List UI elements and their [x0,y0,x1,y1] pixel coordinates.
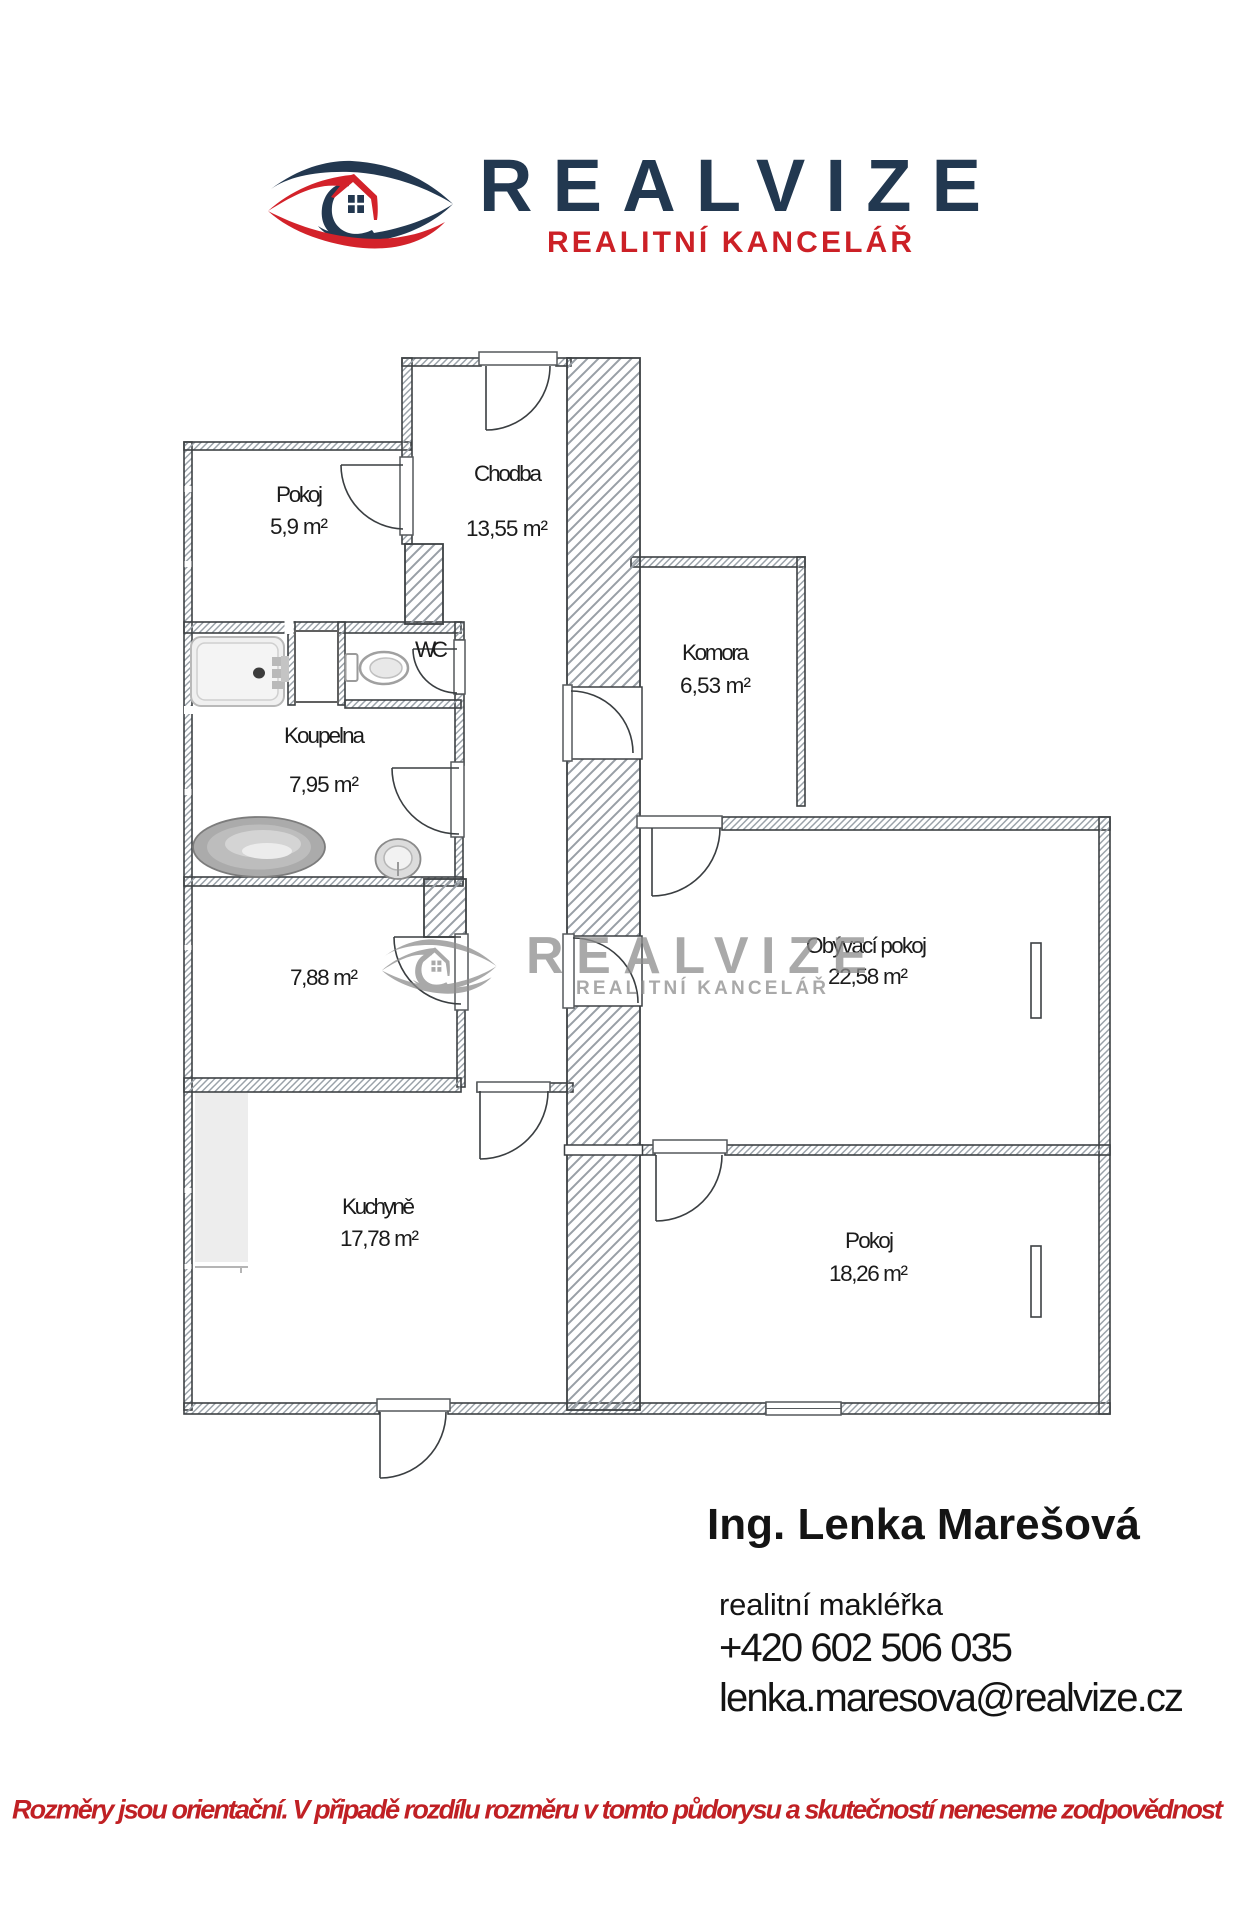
svg-text:17,78 m²: 17,78 m² [340,1226,420,1251]
svg-text:Komora: Komora [682,640,749,665]
svg-text:13,55 m²: 13,55 m² [466,516,549,541]
svg-text:7,88 m²: 7,88 m² [290,965,359,990]
svg-text:Kuchyně: Kuchyně [342,1194,415,1219]
svg-text:5,9 m²: 5,9 m² [270,514,329,539]
svg-text:lenka.maresova@realvize.cz: lenka.maresova@realvize.cz [719,1676,1184,1720]
svg-text:Chodba: Chodba [474,461,542,486]
svg-text:REALVIZE: REALVIZE [479,144,981,227]
svg-text:18,26 m²: 18,26 m² [829,1261,909,1286]
svg-text:REALVIZE: REALVIZE [526,927,867,985]
svg-text:REALITNÍ KANCELÁŘ: REALITNÍ KANCELÁŘ [547,225,912,259]
svg-text:Koupelna: Koupelna [284,723,365,748]
svg-text:Pokoj: Pokoj [276,482,323,507]
svg-text:realitní makléřka: realitní makléřka [719,1587,944,1622]
svg-text:7,95 m²: 7,95 m² [289,772,360,797]
svg-text:Pokoj: Pokoj [845,1228,894,1253]
svg-text:Ing. Lenka Marešová: Ing. Lenka Marešová [707,1500,1141,1549]
svg-text:Rozměry jsou orientační. V při: Rozměry jsou orientační. V připadě rozdí… [12,1795,1224,1825]
svg-text:+420 602 506 035: +420 602 506 035 [719,1626,1013,1670]
svg-text:6,53 m²: 6,53 m² [680,673,752,698]
svg-text:REALITNÍ KANCELÁŘ: REALITNÍ KANCELÁŘ [576,977,826,999]
svg-text:WC: WC [415,637,448,662]
